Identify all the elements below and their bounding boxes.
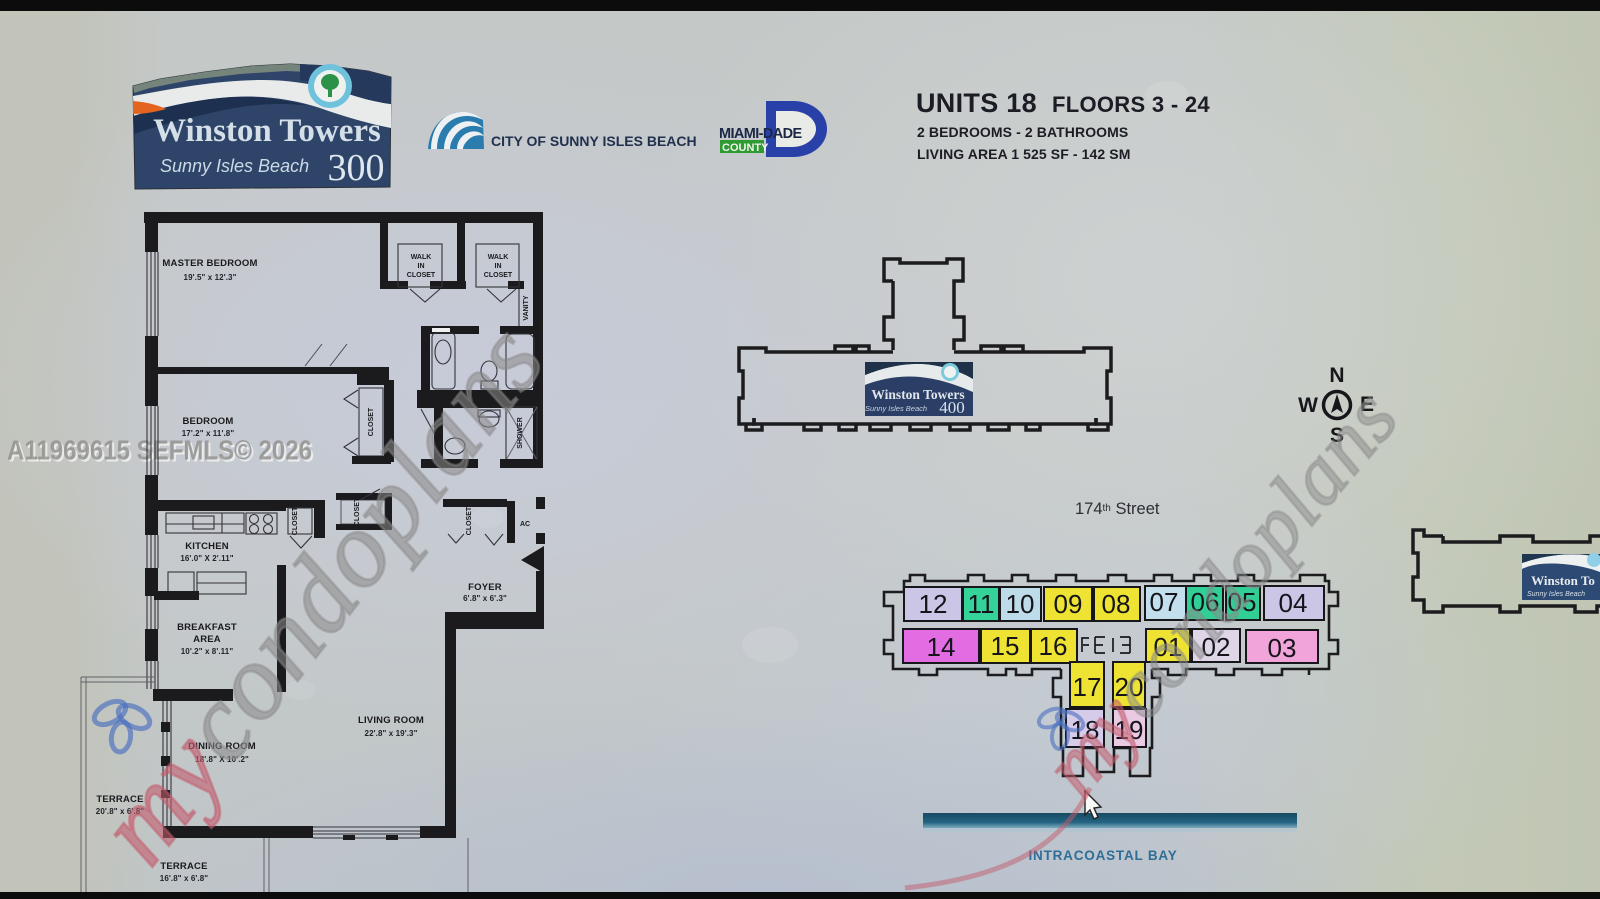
svg-text:03: 03	[1268, 633, 1297, 663]
svg-text:300: 300	[328, 147, 385, 189]
svg-text:19'.5" x 12'.3": 19'.5" x 12'.3"	[184, 273, 237, 282]
svg-text:VANITY: VANITY	[523, 295, 530, 320]
svg-text:09: 09	[1054, 589, 1083, 619]
svg-text:Sunny Isles Beach: Sunny Isles Beach	[865, 404, 927, 413]
svg-text:11: 11	[968, 589, 995, 619]
svg-text:MASTER BEDROOM: MASTER BEDROOM	[162, 258, 257, 269]
svg-text:INTRACOASTAL BAY: INTRACOASTAL BAY	[1028, 848, 1177, 863]
svg-text:CLOSET: CLOSET	[466, 506, 473, 535]
svg-text:2 BEDROOMS - 2 BATHROOMS: 2 BEDROOMS - 2 BATHROOMS	[917, 124, 1128, 140]
svg-text:WALK: WALK	[411, 254, 432, 261]
svg-text:AC: AC	[520, 521, 530, 528]
svg-text:Sunny Isles Beach: Sunny Isles Beach	[1527, 591, 1585, 598]
svg-text:LIVING ROOM: LIVING ROOM	[358, 715, 424, 726]
svg-text:6'.8" x 6'.3": 6'.8" x 6'.3"	[463, 594, 507, 603]
svg-text:400: 400	[939, 398, 965, 417]
svg-text:FLOORS 3 - 24: FLOORS 3 - 24	[1052, 92, 1210, 117]
svg-text:22'.8" x 19'.3": 22'.8" x 19'.3"	[365, 729, 418, 738]
svg-text:17'.2" x 11'.8": 17'.2" x 11'.8"	[182, 429, 235, 438]
svg-text:CLOSET: CLOSET	[407, 272, 436, 279]
svg-text:08: 08	[1102, 589, 1131, 619]
svg-text:12: 12	[919, 589, 948, 619]
svg-text:COUNTY: COUNTY	[722, 142, 769, 154]
svg-text:14: 14	[927, 632, 956, 662]
svg-text:KITCHEN: KITCHEN	[185, 541, 229, 552]
svg-text:10: 10	[1006, 589, 1035, 619]
svg-text:Winston Towers: Winston Towers	[153, 113, 381, 149]
svg-text:Sunny Isles Beach: Sunny Isles Beach	[160, 156, 309, 176]
svg-text:UNITS 18: UNITS 18	[916, 88, 1037, 118]
svg-text:FOYER: FOYER	[468, 582, 502, 593]
svg-text:A11969615 SEFMLS© 2026: A11969615 SEFMLS© 2026	[7, 435, 312, 466]
svg-text:Winston To: Winston To	[1531, 573, 1595, 588]
svg-text:BEDROOM: BEDROOM	[182, 416, 233, 427]
svg-text:16'.0" X 2'.11": 16'.0" X 2'.11"	[180, 554, 233, 563]
svg-text:15: 15	[991, 631, 1020, 661]
svg-text:04: 04	[1279, 588, 1308, 618]
svg-text:MIAMI-DADE: MIAMI-DADE	[719, 126, 803, 142]
svg-text:WALK: WALK	[488, 254, 509, 261]
svg-text:CITY OF SUNNY ISLES BEACH: CITY OF SUNNY ISLES BEACH	[491, 133, 697, 149]
svg-text:16: 16	[1039, 631, 1068, 661]
svg-text:IN: IN	[495, 263, 502, 270]
svg-text:LIVING AREA 1 525 SF - 142 S: LIVING AREA 1 525 SF - 142 SM	[917, 146, 1130, 162]
svg-text:CLOSET: CLOSET	[484, 272, 513, 279]
svg-text:174th Street: 174th Street	[1075, 500, 1160, 518]
svg-text:IN: IN	[418, 263, 425, 270]
